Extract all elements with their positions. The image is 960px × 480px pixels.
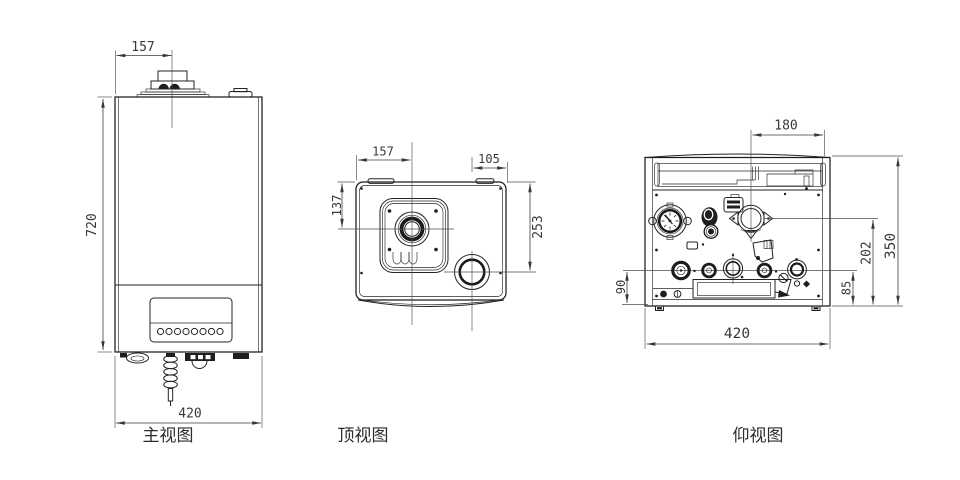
mount-bracket [767, 170, 813, 186]
dim-top-flue-depth: 137 [330, 182, 355, 228]
panel-button [157, 328, 163, 334]
valve-oval [127, 353, 149, 363]
dim-front-height: 720 [85, 97, 112, 352]
plate-screw [434, 209, 438, 213]
top-body-outline [356, 182, 506, 300]
bottom-tray-inner [698, 283, 771, 296]
valve-oval-inner [131, 356, 144, 361]
foot-right-pad [814, 307, 819, 309]
front-bottom-fittings [120, 353, 249, 406]
row-dot [741, 276, 744, 279]
band-recess [658, 164, 822, 187]
top-band-detail [655, 163, 826, 190]
front-body [115, 97, 262, 352]
dim-text-420-front: 420 [178, 407, 201, 422]
bottom-view-label: 仰视图 [733, 426, 784, 446]
gauge-hub [669, 220, 672, 223]
scallop [393, 252, 401, 264]
bottom-mark-right [233, 353, 249, 359]
label-plate [687, 242, 698, 249]
panel-button [191, 328, 197, 334]
small-port [794, 281, 799, 286]
dim-text-350: 350 [883, 233, 899, 259]
port5-screw [795, 258, 798, 261]
collar-plate-2 [141, 92, 205, 95]
pump [702, 207, 718, 238]
pressure-gauge [649, 203, 692, 240]
motor-stripe [727, 201, 740, 204]
pipe-connections [673, 258, 807, 279]
dim-text-420-bottom: 420 [724, 326, 750, 342]
flue-stack-top [158, 71, 187, 81]
gas-inlet-dot [680, 269, 682, 271]
cord-coil [164, 369, 178, 376]
motor-box [724, 198, 743, 213]
fan-assembly [724, 195, 773, 239]
terminal-slot [191, 355, 196, 359]
terminal-dome [192, 361, 207, 369]
dim-text-720: 720 [85, 213, 100, 236]
dim-front-width: 420 [115, 356, 262, 428]
case-screw [655, 295, 658, 298]
pipe-port-5-inner [791, 264, 803, 276]
dim-top-port-depth: 253 [508, 182, 546, 271]
dim-text-180: 180 [774, 119, 797, 134]
dim-bottom-fan-offset: 180 [753, 119, 825, 157]
pump-port-dot [708, 229, 714, 235]
corner-screw [360, 187, 363, 190]
dim-bottom-right-pipe: 85 [840, 272, 854, 305]
power-cord [164, 353, 178, 406]
case-screw [655, 194, 658, 197]
scallop [401, 252, 409, 264]
bottom-view: 180 350 202 85 90 420 仰视图 [614, 119, 903, 447]
venturi-bracket [753, 240, 773, 262]
control-panel-outline [150, 298, 232, 342]
screw-slot [781, 275, 787, 281]
cord-coil [164, 375, 178, 382]
plate-screw [434, 248, 438, 252]
cord-coil [164, 381, 178, 388]
boiler-three-view-drawing: 157 720 420 主视图 [0, 0, 960, 480]
side-slot-left [655, 163, 660, 186]
bracket-pin [804, 176, 809, 186]
row-dot [693, 270, 695, 272]
dim-text-85: 85 [840, 281, 854, 295]
case-screw [817, 249, 820, 252]
bracket-dot [756, 256, 760, 260]
front-flue-collar [137, 50, 252, 128]
top-fitting [229, 92, 252, 98]
plate-screw [388, 248, 392, 252]
dim-text-137: 137 [330, 195, 344, 217]
case-screw [817, 194, 820, 197]
front-view-label: 主视图 [143, 426, 194, 446]
case-screw [817, 295, 820, 298]
panel-button [166, 328, 172, 334]
panel-button [174, 328, 180, 334]
dim-bottom-width: 420 [645, 308, 830, 349]
dim-bottom-fan-depth: 202 [860, 220, 875, 305]
small-dot [702, 243, 704, 245]
front-body-outline [115, 97, 262, 352]
dim-top-flue-offset: 157 [357, 145, 411, 181]
panel-button [183, 328, 189, 334]
diamond-mark [803, 281, 810, 288]
dim-text-253: 253 [531, 215, 546, 238]
collar-bump-left [159, 84, 169, 89]
drain-plug-dark [660, 291, 667, 298]
dim-bottom-left-pipe: 90 [614, 272, 648, 305]
corner-screw [360, 272, 363, 275]
terminal-slot [206, 355, 211, 359]
terminal-slot [198, 355, 203, 359]
foot-left-pad [657, 307, 662, 309]
dim-text-157-top: 157 [372, 145, 394, 159]
dim-text-202: 202 [860, 241, 875, 264]
motor-stripe [727, 206, 740, 209]
corner-screw [499, 187, 502, 190]
dim-text-157-front: 157 [131, 40, 154, 55]
front-view: 157 720 420 主视图 [85, 40, 262, 446]
flue-plate [380, 199, 448, 273]
fan-screw [732, 217, 735, 220]
bottom-mark-left [120, 353, 127, 358]
cord-ferrule [168, 389, 172, 402]
bracket-pin-dot [805, 187, 808, 190]
top-view-label: 顶视图 [338, 426, 389, 446]
control-panel [150, 298, 232, 342]
gauge-ear-right [684, 217, 692, 225]
pump-body [702, 207, 718, 227]
cord-coil [164, 362, 178, 369]
dim-text-105: 105 [478, 152, 500, 166]
plate-screw [388, 209, 392, 213]
panel-button [208, 328, 214, 334]
hinge-tab-right [476, 179, 494, 184]
scallop [409, 252, 417, 264]
side-slot-right [821, 163, 826, 186]
small-dot [784, 193, 786, 195]
drawing-canvas: 157 720 420 主视图 [0, 0, 960, 480]
band-step [662, 180, 755, 184]
top-view: 157 105 137 253 顶视图 [330, 142, 546, 446]
dim-text-90: 90 [614, 280, 628, 294]
front-curve-outer [358, 300, 504, 307]
panel-button [217, 328, 223, 334]
hinge-tab-left [368, 179, 394, 184]
case-screw [655, 249, 658, 252]
collar-bump-right [169, 84, 179, 89]
tray-end-plate [775, 280, 791, 295]
row-dot [775, 270, 777, 272]
panel-button [200, 328, 206, 334]
